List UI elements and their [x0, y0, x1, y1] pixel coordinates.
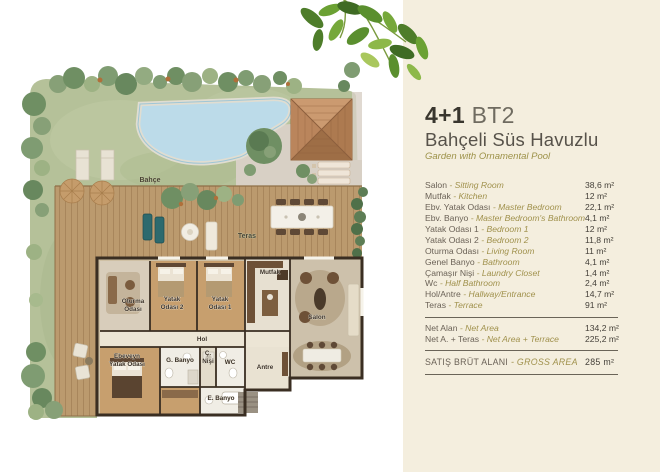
umbrella: [90, 181, 114, 205]
name-separator: -: [440, 278, 443, 288]
patio-sun-loungers: [312, 162, 350, 184]
room-name-turkish: Genel Banyo: [425, 257, 475, 267]
room-area-value: 12 m²: [585, 224, 607, 234]
total-row: Net Alan - Net Area 134,2 m²: [425, 323, 621, 334]
unit-code: BT2: [472, 102, 515, 128]
gazebo-roof: [291, 99, 352, 160]
name-separator: -: [453, 191, 456, 201]
name-separator: -: [448, 300, 451, 310]
label-salon: Salon: [308, 314, 325, 321]
table-divider: [425, 374, 618, 375]
room-name-turkish: Mutfak: [425, 191, 451, 201]
room-area-row: Ebv. Yatak Odası - Master Bedroom 22,1 m…: [425, 202, 621, 213]
leaf-branch-decoration: [282, 0, 442, 92]
label-bahce: Bahçe: [139, 177, 160, 184]
label-teras: Teras: [238, 233, 256, 240]
room-area-value: 38,6 m²: [585, 180, 614, 190]
gross-area-table: SATIŞ BRÜT ALANI - GROSS AREA 285 m²: [425, 356, 621, 368]
total-row: Net A. + Teras - Net Area + Terrace 225,…: [425, 334, 621, 345]
gross-area-value: 285 m²: [585, 357, 614, 367]
room-area-row: Teras - Terrace 91 m²: [425, 300, 621, 311]
room-area-value: 11,8 m²: [585, 235, 614, 245]
room-name-english: Kitchen: [458, 191, 487, 201]
room-name-turkish: Çamaşır Nişi: [425, 268, 474, 278]
page-title: 4+1 BT2: [425, 102, 621, 129]
label-g-banyo: G. Banyo: [166, 357, 194, 364]
room-area-row: Ebv. Banyo - Master Bedroom's Bathroom 4…: [425, 213, 621, 224]
room-area-value: 4,1 m²: [585, 257, 609, 267]
room-area-row: Genel Banyo - Bathroom 4,1 m²: [425, 256, 621, 267]
total-area-value: 134,2 m²: [585, 323, 619, 333]
label-hol: Hol: [197, 336, 207, 343]
room-area-row: Mutfak - Kitchen 12 m²: [425, 191, 621, 202]
brochure-page: Bahçe Teras Mutfak Salon Hol Oturma Odas…: [0, 0, 660, 472]
room-area-value: 2,4 m²: [585, 278, 609, 288]
total-name-english: Net Area: [465, 323, 499, 333]
label-ebeveyn-2: Yatak Odası: [109, 361, 145, 368]
table-divider: [425, 350, 618, 351]
room-area-row: Yatak Odası 1 - Bedroom 1 12 m²: [425, 224, 621, 235]
room-name-english: Bedroom 1: [486, 224, 528, 234]
label-antre: Antre: [257, 364, 274, 371]
room-name-turkish: Ebv. Banyo: [425, 213, 468, 223]
name-separator: -: [477, 268, 480, 278]
room-area-value: 12 m²: [585, 191, 607, 201]
room-area-value: 1,4 m²: [585, 268, 609, 278]
room-area-value: 4,1 m²: [585, 213, 609, 223]
total-area-value: 225,2 m²: [585, 334, 619, 344]
room-area-row: Çamaşır Nişi - Laundry Closet 1,4 m²: [425, 267, 621, 278]
name-separator: -: [460, 323, 463, 333]
bed: [156, 263, 186, 297]
room-area-value: 22,1 m²: [585, 202, 614, 212]
room-name-turkish: Wc: [425, 278, 437, 288]
room-area-row: Oturma Odası - Living Room 11 m²: [425, 245, 621, 256]
total-name-english: Net Area + Terrace: [487, 334, 559, 344]
label-mutfak: Mutfak: [260, 269, 281, 276]
room-name-turkish: Salon: [425, 180, 447, 190]
leaves: [297, 0, 430, 82]
room-name-english: Master Bedroom: [498, 202, 562, 212]
room-name-english: Hallway/Entrance: [468, 289, 535, 299]
room-name-english: Terrace: [454, 300, 483, 310]
bed: [204, 263, 234, 297]
total-name-turkish: Net Alan: [425, 323, 458, 333]
room-area-value: 11 m²: [585, 246, 606, 256]
room-name-english: Laundry Closet: [482, 268, 540, 278]
room-name-turkish: Yatak Odası 2: [425, 235, 479, 245]
room-area-value: 14,7 m²: [585, 289, 614, 299]
name-separator: -: [477, 257, 480, 267]
room-hol: [100, 331, 290, 347]
label-e-banyo: E. Banyo: [208, 395, 235, 402]
name-separator: -: [481, 235, 484, 245]
entrance-steps: [238, 392, 258, 413]
unit-type: 4+1: [425, 102, 465, 128]
label-oturma-odasi-2: Odası: [124, 306, 142, 313]
label-oturma-odasi-1: Oturma: [122, 298, 145, 305]
room-name-turkish: Teras: [425, 300, 446, 310]
label-yatak-odasi-1-2: Odası 1: [209, 304, 232, 311]
room-area-row: Salon - Sitting Room 38,6 m²: [425, 180, 621, 191]
room-name-english: Living Room: [487, 246, 535, 256]
room-area-row: Wc - Half Bathroom 2,4 m²: [425, 278, 621, 289]
plan-title-english: Garden with Ornamental Pool: [425, 150, 621, 163]
name-separator: -: [481, 246, 484, 256]
label-c-nisi-1: Ç.: [205, 350, 212, 357]
room-name-turkish: Hol/Antre: [425, 289, 461, 299]
house: [97, 257, 364, 416]
room-name-english: Sitting Room: [455, 180, 504, 190]
room-name-english: Bathroom: [482, 257, 519, 267]
plan-title-turkish: Bahçeli Süs Havuzlu: [425, 129, 621, 150]
room-name-turkish: Yatak Odası 1: [425, 224, 479, 234]
name-separator: -: [463, 289, 466, 299]
room-area-value: 91 m²: [585, 300, 607, 310]
room-name-english: Master Bedroom's Bathroom: [476, 213, 585, 223]
room-area-table: Salon - Sitting Room 38,6 m² Mutfak - Ki…: [425, 180, 621, 311]
label-yatak-odasi-2-1: Yatak: [164, 296, 181, 303]
gross-name-turkish: SATIŞ BRÜT ALANI: [425, 357, 508, 367]
room-name-english: Bedroom 2: [486, 235, 528, 245]
name-separator: -: [471, 213, 474, 223]
gross-name-english: GROSS AREA: [517, 357, 578, 367]
room-name-turkish: Oturma Odası: [425, 246, 479, 256]
label-c-nisi-2: Nişi: [202, 358, 214, 365]
name-separator: -: [481, 224, 484, 234]
name-separator: -: [481, 334, 484, 344]
room-name-english: Half Bathroom: [445, 278, 500, 288]
name-separator: -: [449, 180, 452, 190]
gross-area-row: SATIŞ BRÜT ALANI - GROSS AREA 285 m²: [425, 356, 621, 368]
table-divider: [425, 317, 618, 318]
total-name-turkish: Net A. + Teras: [425, 334, 479, 344]
label-yatak-odasi-2-2: Odası 2: [161, 304, 184, 311]
name-separator: -: [493, 202, 496, 212]
totals-table: Net Alan - Net Area 134,2 m² Net A. + Te…: [425, 323, 621, 345]
umbrella: [60, 179, 84, 203]
name-separator: -: [511, 357, 514, 367]
room-name-turkish: Ebv. Yatak Odası: [425, 202, 490, 212]
room-area-row: Yatak Odası 2 - Bedroom 2 11,8 m²: [425, 234, 621, 245]
label-wc: WC: [225, 359, 236, 366]
label-ebeveyn-1: Ebeveyn: [114, 353, 140, 360]
label-yatak-odasi-1-1: Yatak: [212, 296, 229, 303]
room-area-row: Hol/Antre - Hallway/Entrance 14,7 m²: [425, 289, 621, 300]
